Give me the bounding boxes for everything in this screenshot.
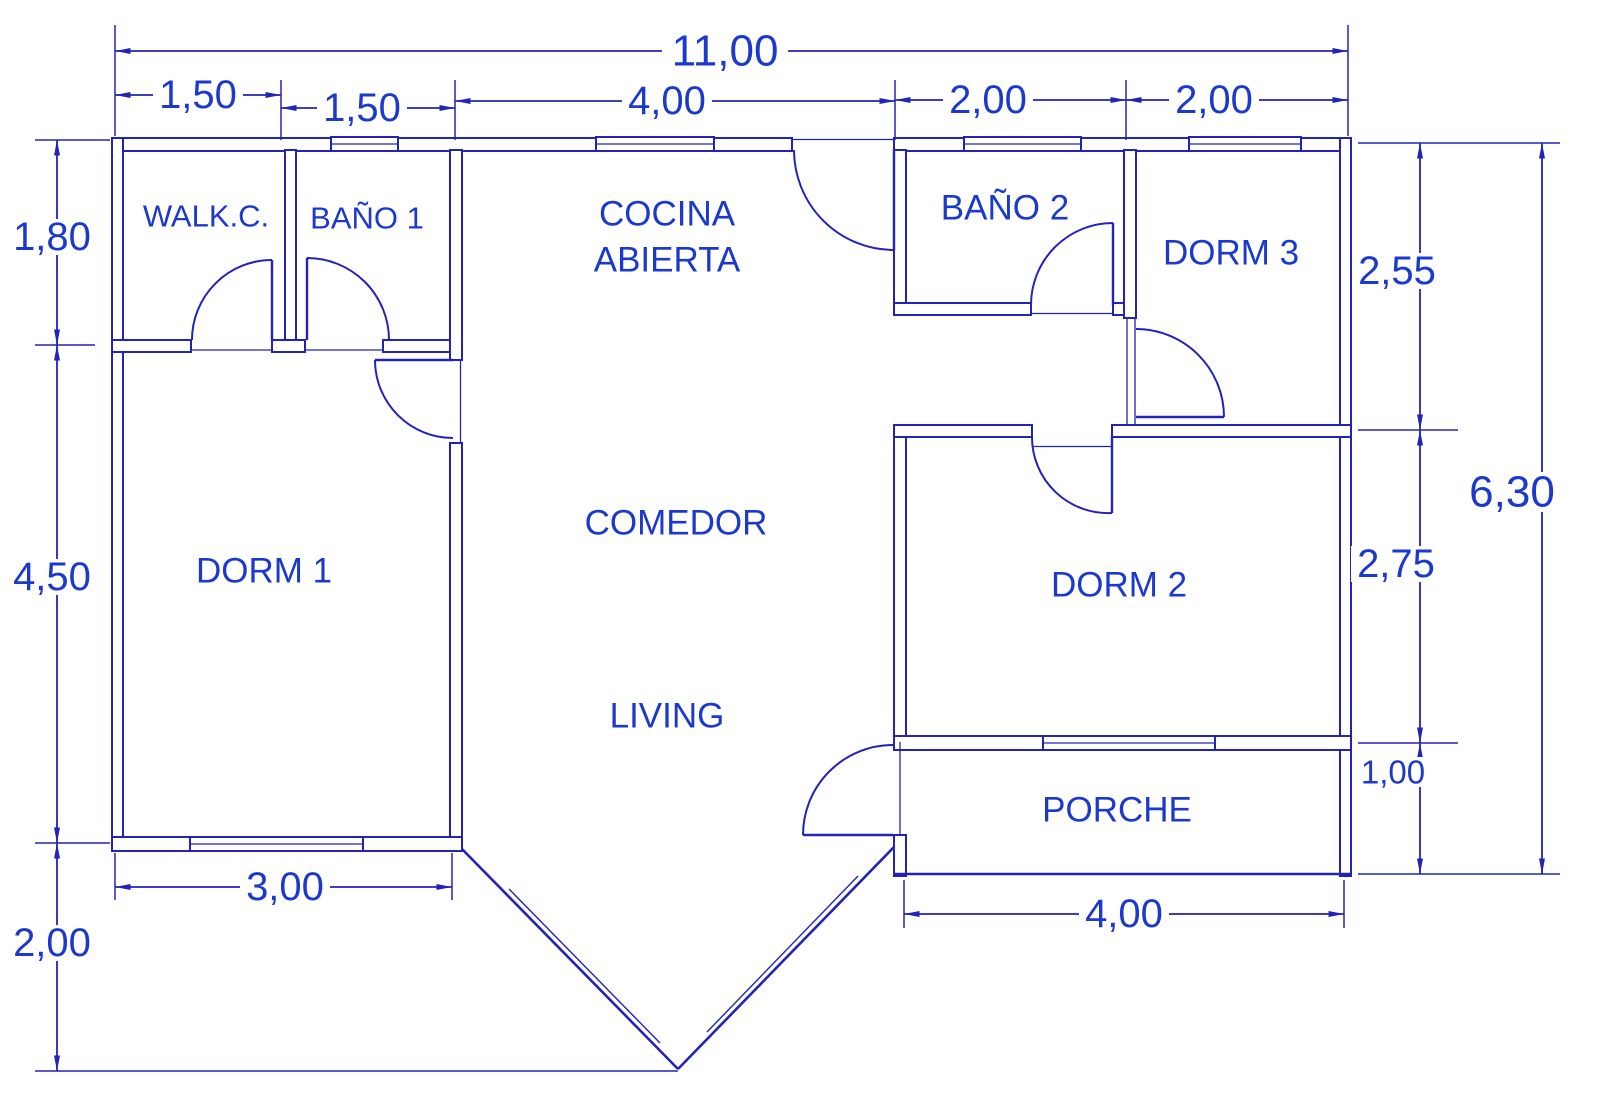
dim-right-0: 2,55 — [1358, 249, 1436, 293]
door-arc-bano1 — [307, 258, 389, 340]
dim-top-0: 1,50 — [159, 73, 237, 117]
door-arc-bano2 — [1031, 223, 1113, 305]
door-arc-dorm3 — [1136, 329, 1224, 417]
room-label-comedor: COMEDOR — [585, 504, 768, 543]
bay-window — [462, 847, 894, 1069]
room-label-cocina-line2: ABIERTA — [594, 241, 741, 280]
dim-right-2: 1,00 — [1361, 754, 1425, 791]
room-label-living: LIVING — [610, 697, 725, 736]
dim-top-4: 2,00 — [1175, 78, 1253, 122]
door-arc-dorm2 — [1032, 437, 1112, 513]
room-label-walk-closet: WALK.C. — [143, 199, 269, 234]
wall-dorm2-top-left — [894, 425, 1032, 437]
wall-exterior-right — [1340, 138, 1351, 876]
wall-divider-bano2-dorm3 — [1124, 150, 1136, 318]
wall-center-porch-stub — [894, 835, 906, 876]
wall-band-bottom-2 — [272, 340, 305, 352]
dim-total-height: 6,30 — [1469, 468, 1555, 517]
floor-plan-drawing: 11,00 1,50 1,50 4,00 2,00 2,00 1,80 4,50… — [0, 0, 1600, 1100]
dim-top-3: 2,00 — [949, 78, 1027, 122]
room-label-dorm3: DORM 3 — [1163, 234, 1299, 273]
dim-left-1: 4,50 — [13, 555, 91, 599]
wall-band-bottom-1 — [112, 340, 191, 352]
room-label-bano2: BAÑO 2 — [941, 189, 1069, 228]
bay-glazing-left — [509, 889, 660, 1043]
wall-dorm2-top-right — [1112, 425, 1351, 437]
dim-bottom-right: 4,00 — [1085, 892, 1163, 936]
room-label-dorm2: DORM 2 — [1051, 566, 1187, 605]
wall-divider-walkc-bano1 — [285, 150, 296, 340]
dim-top-2: 4,00 — [628, 79, 706, 123]
room-label-dorm1: DORM 1 — [196, 552, 332, 591]
dim-bottom-left: 3,00 — [246, 865, 324, 909]
room-label-porche: PORCHE — [1042, 791, 1192, 830]
floor-plan-page: 11,00 1,50 1,50 4,00 2,00 2,00 1,80 4,50… — [0, 0, 1600, 1100]
room-label-bano1: BAÑO 1 — [310, 201, 424, 236]
wall-center-middle — [894, 425, 906, 742]
wall-exterior-left — [112, 138, 123, 850]
wall-dorm1-right-upper — [450, 150, 462, 360]
bay-glazing-right — [707, 876, 858, 1032]
door-arc-dorm1 — [375, 360, 453, 438]
door-arc-entry — [794, 150, 894, 250]
dimension-labels: 11,00 1,50 1,50 4,00 2,00 2,00 1,80 4,50… — [8, 27, 1560, 966]
wall-dorm1-right-lower — [450, 443, 462, 850]
dim-total-width: 11,00 — [672, 27, 779, 76]
room-label-cocina-line1: COCINA — [599, 195, 736, 234]
door-arc-living — [803, 745, 893, 835]
bay-wall-right — [678, 847, 894, 1069]
dim-left-0: 1,80 — [13, 215, 91, 259]
bay-wall-left — [462, 849, 678, 1069]
dim-right-1: 2,75 — [1357, 542, 1435, 586]
dim-left-2: 2,00 — [13, 921, 91, 965]
wall-bano2-bottom — [894, 303, 1031, 315]
dim-top-1: 1,50 — [323, 86, 401, 130]
door-arc-walkc — [192, 260, 272, 340]
wall-center-upper — [894, 150, 906, 315]
